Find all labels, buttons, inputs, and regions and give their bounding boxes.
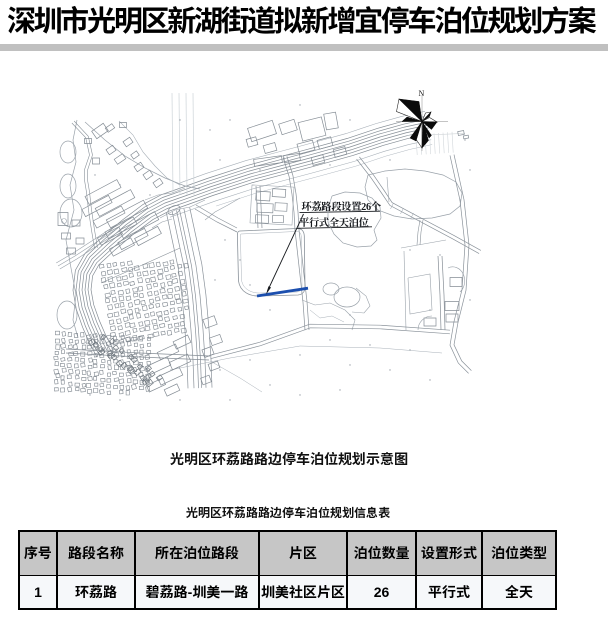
svg-text:N: N: [419, 88, 425, 99]
svg-text:平行式全天泊位: 平行式全天泊位: [299, 214, 370, 229]
svg-text:环荔路段设置26个: 环荔路段设置26个: [302, 198, 382, 213]
